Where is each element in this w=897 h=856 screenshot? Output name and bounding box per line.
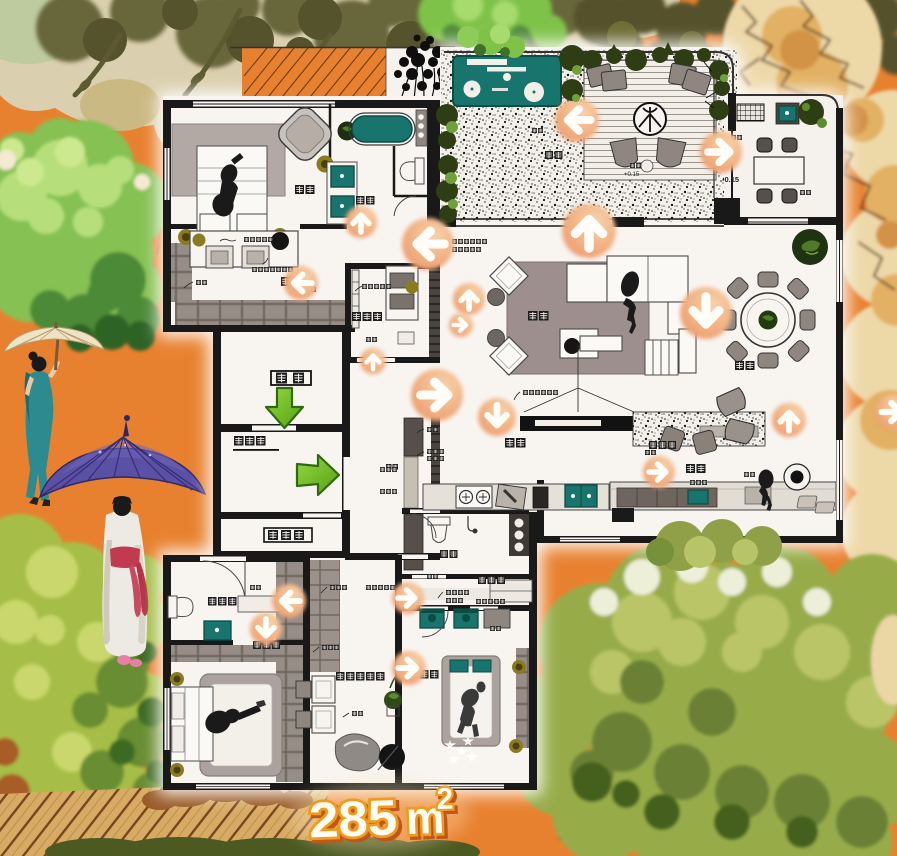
svg-text:285: 285 [308, 789, 398, 848]
svg-text:2: 2 [436, 782, 454, 816]
svg-text:+0.15: +0.15 [624, 172, 640, 178]
svg-text:-0.15: -0.15 [722, 175, 739, 184]
